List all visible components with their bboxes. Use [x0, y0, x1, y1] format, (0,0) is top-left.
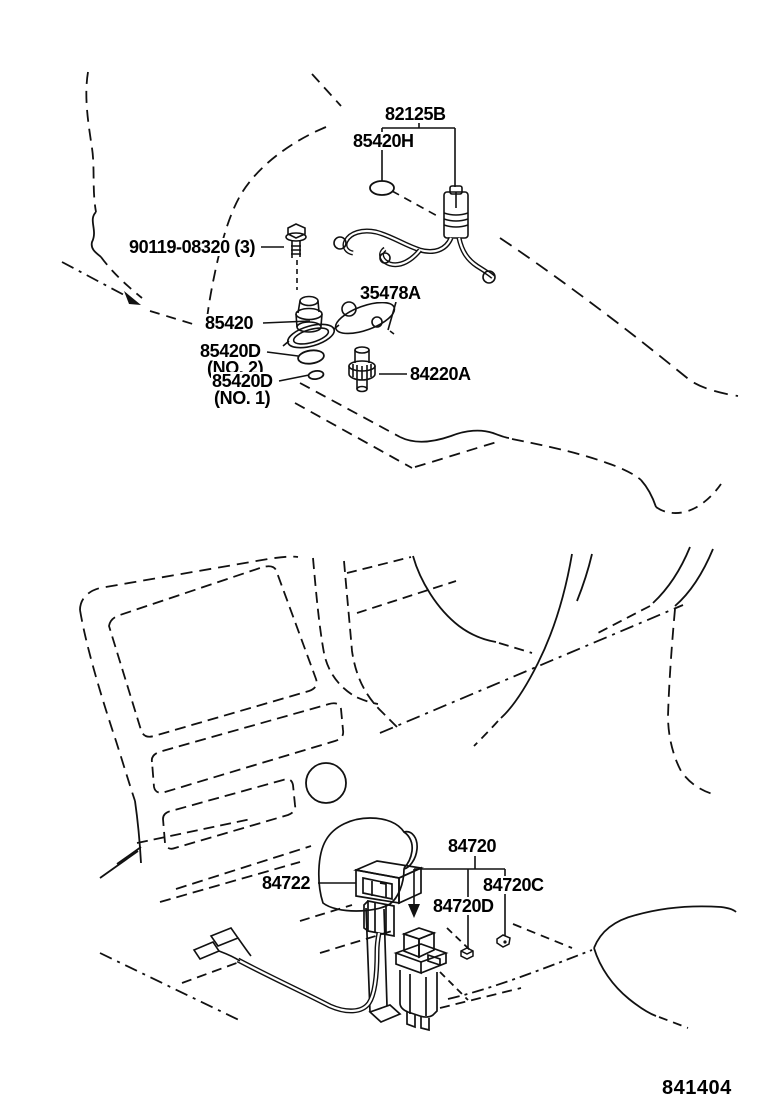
part-label-84722: 84722 — [261, 874, 311, 892]
part-label-85420: 85420 — [204, 314, 254, 332]
console-floor-lines — [100, 819, 592, 1022]
figure-number: 841404 — [662, 1077, 732, 1100]
gasket-85420d-no1 — [308, 370, 324, 380]
part-label-84720: 84720 — [447, 837, 497, 855]
switch-85420 — [283, 297, 339, 353]
part-label-35478a: 35478A — [359, 284, 422, 302]
part-label-84220a: 84220A — [409, 365, 472, 383]
bolt-90119-08320 — [286, 224, 306, 258]
part-label-85420h: 85420H — [352, 132, 415, 150]
parts-diagram-page: 82125B 85420H 90119-08320 (3) 85420 3547… — [0, 0, 760, 1112]
part-label-90119-08320: 90119-08320 (3) — [128, 238, 256, 256]
grommet-85420h — [370, 181, 394, 195]
part-label-85420d-no1-qualifier: (NO. 1) — [213, 389, 271, 407]
clip-84720c — [497, 935, 510, 947]
part-label-82125b: 82125B — [384, 105, 447, 123]
switch-84220a — [349, 347, 375, 392]
instrument-panel-outline — [80, 547, 716, 878]
seat-outline — [594, 906, 736, 1028]
clip-84720d — [461, 948, 473, 959]
part-label-84720c: 84720C — [482, 876, 545, 894]
switch-84722 — [356, 861, 421, 936]
part-label-84720d: 84720D — [432, 897, 495, 915]
wire-harness-84722 — [194, 928, 379, 1011]
gasket-85420d-no2 — [297, 349, 325, 365]
view-arrow — [62, 262, 141, 305]
diagram-canvas — [0, 0, 760, 1112]
relay-84720 — [396, 928, 446, 1030]
connector-82125b — [334, 186, 495, 283]
